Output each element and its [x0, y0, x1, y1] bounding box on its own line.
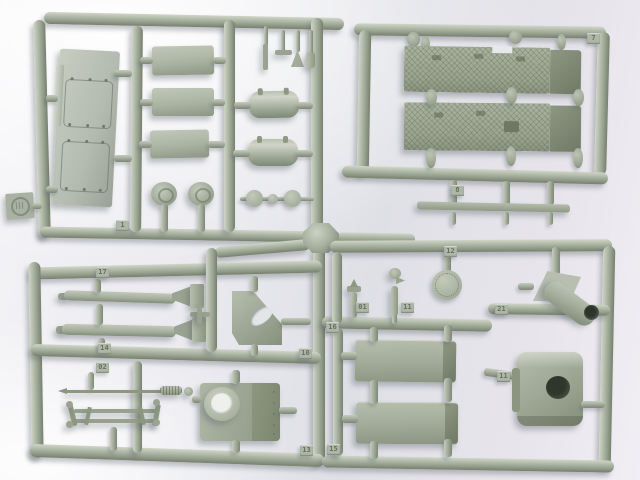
- rack-knob: [66, 401, 73, 408]
- sprue-runner: [215, 239, 311, 258]
- logo-ring-icon: [10, 196, 30, 216]
- sprue-stem: [212, 99, 225, 106]
- sprue-stem: [198, 204, 205, 232]
- wheel-disc: [246, 190, 263, 207]
- cone-fitting: [291, 50, 304, 67]
- shield-flange: [512, 368, 520, 412]
- sprue-runner: [30, 260, 322, 279]
- sprue-stem: [208, 141, 225, 148]
- part-number-tag: 13: [300, 445, 313, 456]
- sprue-stem: [547, 181, 554, 205]
- sprue-stem: [139, 141, 152, 148]
- hook-fitting-tip: [350, 279, 358, 287]
- barrel-breech-funnel: [172, 286, 192, 307]
- part-number-tag: 10: [299, 348, 312, 359]
- sprue-stem: [94, 279, 101, 293]
- deck-hatch-pair: [63, 79, 113, 129]
- fuel-drum: [249, 91, 299, 119]
- fender-clamp: [474, 54, 483, 59]
- aerial-knob: [184, 387, 193, 396]
- part-number-tag: 17: [96, 267, 109, 278]
- sprue-stem: [281, 318, 311, 325]
- drum-strap: [284, 88, 289, 95]
- sprue-stem: [309, 30, 313, 54]
- wheel-disc: [284, 190, 301, 207]
- sprue-stem: [297, 102, 313, 109]
- sprue-stem: [444, 439, 452, 457]
- drum-strap: [283, 136, 288, 143]
- engine-deck-plate: [52, 49, 120, 208]
- sprue-stem: [264, 26, 268, 46]
- wheel-disc: [268, 194, 278, 204]
- part-number-tag: 21: [495, 304, 508, 315]
- sprue-gate: [506, 146, 516, 166]
- sprue-stem: [444, 378, 452, 402]
- part-number-tag: 12: [444, 246, 457, 257]
- rack-knob: [153, 399, 160, 406]
- part-number-tag: 7: [587, 33, 600, 44]
- sprue-runner: [31, 344, 321, 364]
- sprue-stem: [114, 70, 132, 77]
- sprue-stem: [251, 276, 258, 292]
- turret-ring-opening: [211, 393, 233, 414]
- sprue-runner: [28, 262, 43, 458]
- sprue-stem: [581, 401, 605, 408]
- sprue-stem: [140, 99, 153, 106]
- barrel-breech-funnel: [174, 319, 194, 341]
- part-number-tag: 1: [116, 220, 129, 231]
- fuel-drum: [248, 139, 298, 166]
- part-number-tag: 8: [451, 185, 464, 196]
- sprue-runner: [342, 166, 608, 185]
- sprue-runner: [206, 248, 217, 352]
- sprue-stem: [444, 325, 452, 342]
- fender-plate: [404, 102, 581, 152]
- fender-clamp: [432, 55, 441, 60]
- stowage-box: [152, 88, 214, 116]
- sprue-gate: [426, 148, 436, 168]
- sprue-stem: [46, 95, 58, 102]
- periscope-post: [391, 286, 398, 316]
- rack-knob: [153, 419, 160, 426]
- sprue-stem: [281, 30, 285, 52]
- sprue-stem: [140, 57, 153, 64]
- periscope-head: [389, 268, 401, 279]
- part-number-tag: 01: [356, 302, 369, 313]
- stowage-box: [150, 129, 209, 158]
- sprue-stem: [279, 407, 297, 414]
- sprue-stem: [234, 102, 251, 109]
- sprue-stem: [296, 150, 313, 157]
- stowage-bin: [356, 402, 458, 445]
- sprue-runner: [44, 12, 344, 30]
- sprue-stem: [213, 57, 226, 64]
- rack-knob: [66, 421, 73, 428]
- sprue-runner: [30, 444, 324, 467]
- part-number-tag: 11: [497, 371, 510, 382]
- cross-fitting: [197, 305, 202, 324]
- sprue-runner: [594, 32, 610, 175]
- pin-fitting: [548, 212, 553, 225]
- plate-facet: [252, 383, 280, 441]
- sprue-stem: [161, 204, 168, 232]
- sprue-runner: [599, 246, 616, 468]
- deck-hatch-pair: [60, 141, 111, 193]
- sprue-runner: [224, 20, 235, 232]
- sprue-stem: [251, 344, 258, 356]
- sprue-stem: [232, 370, 240, 384]
- sprue-stem: [114, 155, 132, 162]
- mold-logo-stamp: [5, 192, 35, 220]
- sprue-stem: [370, 441, 378, 459]
- sprue-photo: 1 7 8 17 14 02 10 13 12 01 11 16 21 11 1…: [0, 0, 640, 480]
- sprue-stem: [232, 440, 240, 453]
- stowage-box: [152, 45, 214, 75]
- fender-clamp: [434, 112, 443, 117]
- sprue-stem: [392, 314, 397, 324]
- sprue-stem: [518, 283, 534, 290]
- part-number-tag: 14: [98, 343, 111, 354]
- aerial-base: [160, 386, 182, 395]
- hatch-disc: [432, 270, 462, 300]
- sprue-stem: [46, 186, 58, 193]
- sprue-stem: [342, 415, 358, 423]
- periscope-wedge: [396, 277, 405, 284]
- sprue-runner: [332, 252, 342, 324]
- sprue-runner: [357, 30, 372, 175]
- sprue-gate: [509, 30, 522, 44]
- part-number-tag: 15: [327, 444, 340, 455]
- sprue-runner: [322, 316, 492, 332]
- sprue-stem: [96, 304, 103, 325]
- sprue-stem: [296, 30, 300, 52]
- sprue-gate: [573, 148, 583, 168]
- shield-bore: [546, 376, 570, 399]
- sprue-stem: [552, 247, 560, 275]
- drum-strap: [257, 136, 262, 143]
- fender-clamp: [516, 56, 525, 61]
- sprue-runner: [333, 328, 343, 456]
- drum-strap: [258, 88, 263, 95]
- sprue-stem: [110, 427, 117, 451]
- bracket-plate: [232, 291, 282, 345]
- sprue-runner: [330, 239, 612, 252]
- gun-barrel: [62, 324, 176, 337]
- plug-fitting: [306, 52, 315, 68]
- sprue-stem: [192, 396, 201, 403]
- ventilator-dome: [151, 182, 177, 206]
- sprue-runner: [354, 23, 606, 39]
- sprue-stem: [370, 380, 378, 404]
- sprue-stem: [88, 372, 94, 390]
- sprue-gate: [573, 89, 584, 106]
- sprue-stem: [233, 150, 250, 157]
- part-number-tag: 16: [326, 322, 339, 333]
- aerial-rod: [66, 390, 162, 393]
- sprue-gate: [407, 32, 420, 47]
- sprue-gate: [426, 89, 437, 106]
- ventilator-dome: [188, 182, 214, 206]
- fender-plate: [404, 46, 582, 94]
- pin-fitting: [263, 44, 268, 70]
- exhaust-bore: [584, 305, 599, 320]
- fender-hinge: [504, 121, 519, 132]
- part-number-tag: 11: [401, 302, 414, 313]
- fender-clamp: [476, 111, 485, 116]
- pin-fitting: [451, 212, 456, 225]
- stowage-bin: [355, 339, 457, 382]
- sprue-stem: [341, 352, 357, 360]
- sprue-stem: [32, 203, 42, 209]
- t-bar-fitting: [275, 50, 292, 55]
- sprue-runner: [40, 227, 324, 243]
- sprue-stem: [370, 327, 378, 342]
- part-number-tag: 02: [96, 362, 109, 373]
- sprue-runner: [322, 455, 614, 472]
- sprue-stem: [503, 181, 510, 205]
- pin-fitting: [504, 212, 509, 225]
- sprue-gate: [506, 87, 517, 104]
- fender-notch: [492, 46, 512, 53]
- gun-barrel: [64, 290, 176, 304]
- bracket-cutout: [247, 302, 277, 330]
